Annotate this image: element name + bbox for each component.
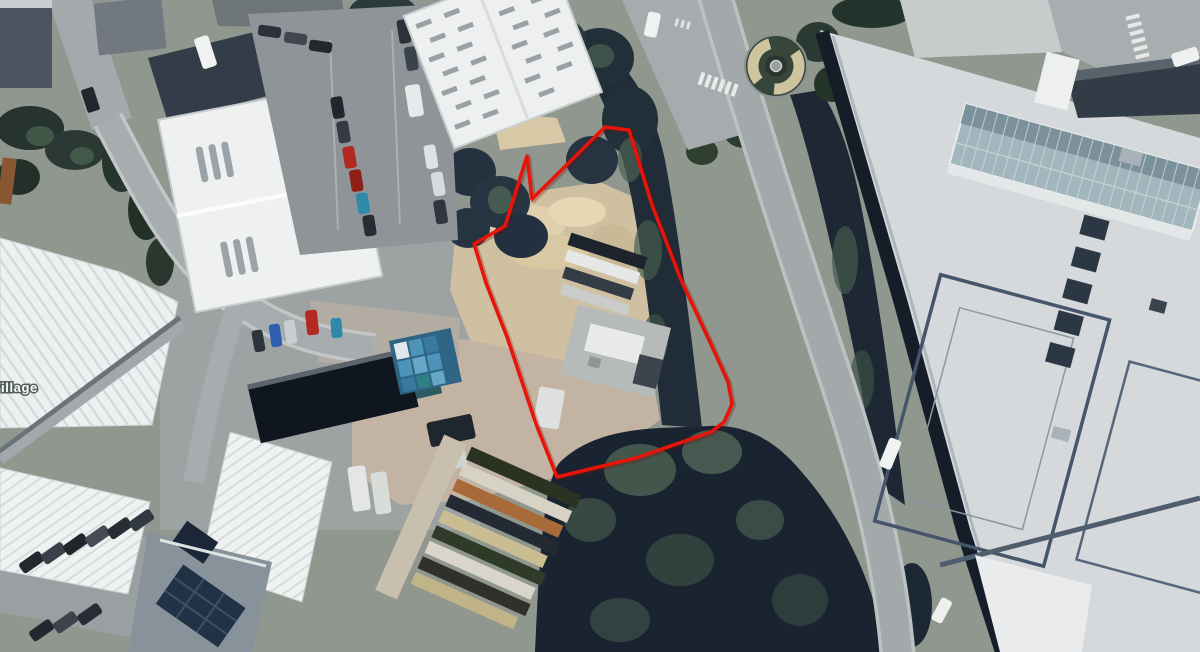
satellite-map[interactable]: Village: [0, 0, 1200, 652]
map-place-label: Village: [0, 380, 38, 395]
aerial-imagery: Village: [0, 0, 1200, 652]
roundabout: [744, 34, 808, 98]
